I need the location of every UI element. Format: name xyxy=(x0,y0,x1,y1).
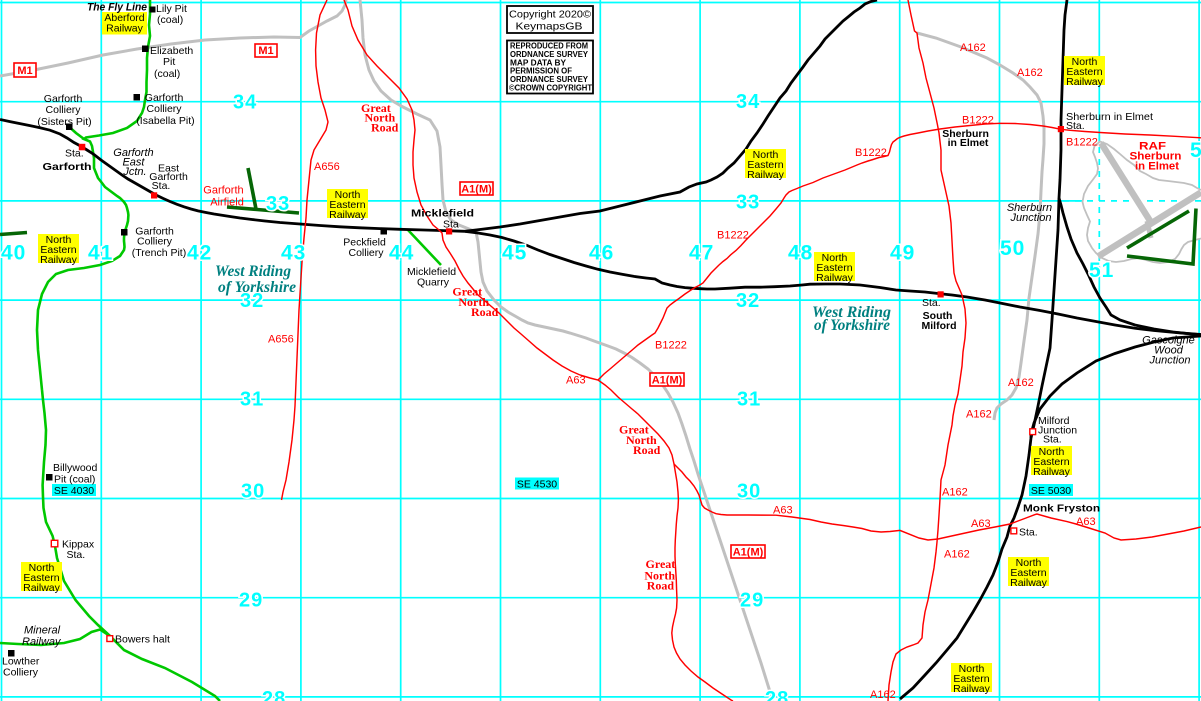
svg-text:A162: A162 xyxy=(966,409,992,421)
svg-text:Railway: Railway xyxy=(1066,76,1104,88)
svg-text:SE 5030: SE 5030 xyxy=(1031,485,1071,497)
svg-text:A656: A656 xyxy=(268,334,294,346)
svg-text:40: 40 xyxy=(1,242,26,265)
svg-text:Railway: Railway xyxy=(953,683,991,695)
svg-text:Sta.: Sta. xyxy=(1019,527,1038,539)
svg-text:Sta.: Sta. xyxy=(922,297,941,309)
svg-text:48: 48 xyxy=(788,242,813,265)
svg-text:Billywood Pit (coal): Billywood Pit (coal) xyxy=(53,462,100,486)
svg-text:A63: A63 xyxy=(1076,516,1096,528)
svg-text:B1222: B1222 xyxy=(1066,137,1098,149)
svg-text:Sta: Sta xyxy=(443,219,459,231)
svg-text:SE 4530: SE 4530 xyxy=(517,479,557,491)
svg-text:Sta.: Sta. xyxy=(65,148,84,160)
svg-text:32: 32 xyxy=(736,290,760,312)
svg-text:A63: A63 xyxy=(566,375,586,387)
svg-text:Railway: Railway xyxy=(329,209,367,221)
svg-text:West Riding of Yorkshire: West Riding of Yorkshire xyxy=(215,263,296,296)
svg-text:33: 33 xyxy=(736,192,760,214)
svg-text:Railway: Railway xyxy=(40,254,78,266)
svg-text:42: 42 xyxy=(187,242,212,265)
svg-text:West Riding of Yorkshire: West Riding of Yorkshire xyxy=(812,304,895,334)
svg-text:Great North Road: Great North Road xyxy=(644,557,678,592)
svg-text:49: 49 xyxy=(890,242,915,265)
svg-text:45: 45 xyxy=(502,242,527,265)
svg-text:5: 5 xyxy=(1190,139,1201,162)
svg-text:34: 34 xyxy=(233,92,257,114)
svg-text:South Milford: South Milford xyxy=(922,310,957,332)
svg-text:A1(M): A1(M) xyxy=(733,546,764,558)
svg-text:Copyright 2020©: Copyright 2020© xyxy=(509,9,591,21)
svg-text:Garforth Airfield: Garforth Airfield xyxy=(203,185,246,209)
svg-text:30: 30 xyxy=(241,481,265,503)
svg-text:M1: M1 xyxy=(17,65,32,77)
svg-text:Mineral Railway: Mineral Railway xyxy=(22,625,63,649)
svg-text:Railway: Railway xyxy=(23,582,61,594)
svg-text:30: 30 xyxy=(737,481,761,503)
svg-text:A162: A162 xyxy=(942,487,968,499)
svg-text:Monk Fryston: Monk Fryston xyxy=(1023,503,1100,515)
svg-text:Bowers halt: Bowers halt xyxy=(115,634,170,646)
svg-text:Railway: Railway xyxy=(106,23,144,35)
svg-text:A162: A162 xyxy=(870,689,896,701)
svg-text:Railway: Railway xyxy=(1010,577,1048,589)
svg-text:31: 31 xyxy=(737,388,761,410)
svg-text:29: 29 xyxy=(740,590,764,612)
svg-text:A162: A162 xyxy=(960,42,986,54)
svg-text:A162: A162 xyxy=(1017,67,1043,79)
svg-text:51: 51 xyxy=(1089,259,1114,282)
svg-text:Sherburn in Elmet: Sherburn in Elmet xyxy=(942,128,992,149)
svg-text:A1(M): A1(M) xyxy=(652,374,683,386)
svg-text:50: 50 xyxy=(1000,237,1025,260)
svg-text:©CROWN COPYRIGHT: ©CROWN COPYRIGHT xyxy=(509,83,592,92)
svg-text:B1222: B1222 xyxy=(717,230,749,242)
svg-text:SE 4030: SE 4030 xyxy=(54,485,94,497)
svg-text:A656: A656 xyxy=(314,161,340,173)
svg-text:28: 28 xyxy=(262,688,286,701)
svg-text:Railway: Railway xyxy=(816,272,854,284)
svg-text:Lowther Colliery: Lowther Colliery xyxy=(2,656,42,679)
svg-text:Garforth: Garforth xyxy=(43,161,92,173)
svg-text:Sherburn Junction: Sherburn Junction xyxy=(1007,202,1055,224)
svg-text:B1222: B1222 xyxy=(855,147,887,159)
svg-text:B1222: B1222 xyxy=(655,340,687,352)
svg-text:31: 31 xyxy=(240,388,264,410)
svg-text:A1(M): A1(M) xyxy=(461,183,492,195)
svg-text:Peckfield Colliery: Peckfield Colliery xyxy=(343,237,389,260)
svg-text:Railway: Railway xyxy=(747,169,785,181)
svg-text:A63: A63 xyxy=(773,505,793,517)
svg-text:43: 43 xyxy=(281,242,306,265)
svg-text:28: 28 xyxy=(765,688,789,701)
svg-text:41: 41 xyxy=(88,242,113,265)
svg-text:B1222: B1222 xyxy=(962,115,994,127)
svg-text:A162: A162 xyxy=(944,549,970,561)
svg-text:KeymapsGB: KeymapsGB xyxy=(516,21,583,33)
svg-text:A162: A162 xyxy=(1008,377,1034,389)
svg-text:44: 44 xyxy=(389,242,414,265)
svg-text:46: 46 xyxy=(589,242,614,265)
svg-text:A63: A63 xyxy=(971,518,991,530)
svg-text:47: 47 xyxy=(689,242,714,265)
svg-text:The Fly Line: The Fly Line xyxy=(87,2,147,14)
svg-text:34: 34 xyxy=(736,91,760,113)
svg-text:Railway: Railway xyxy=(1033,466,1071,478)
svg-text:29: 29 xyxy=(239,590,263,612)
svg-text:M1: M1 xyxy=(258,45,273,57)
svg-text:33: 33 xyxy=(266,193,290,215)
